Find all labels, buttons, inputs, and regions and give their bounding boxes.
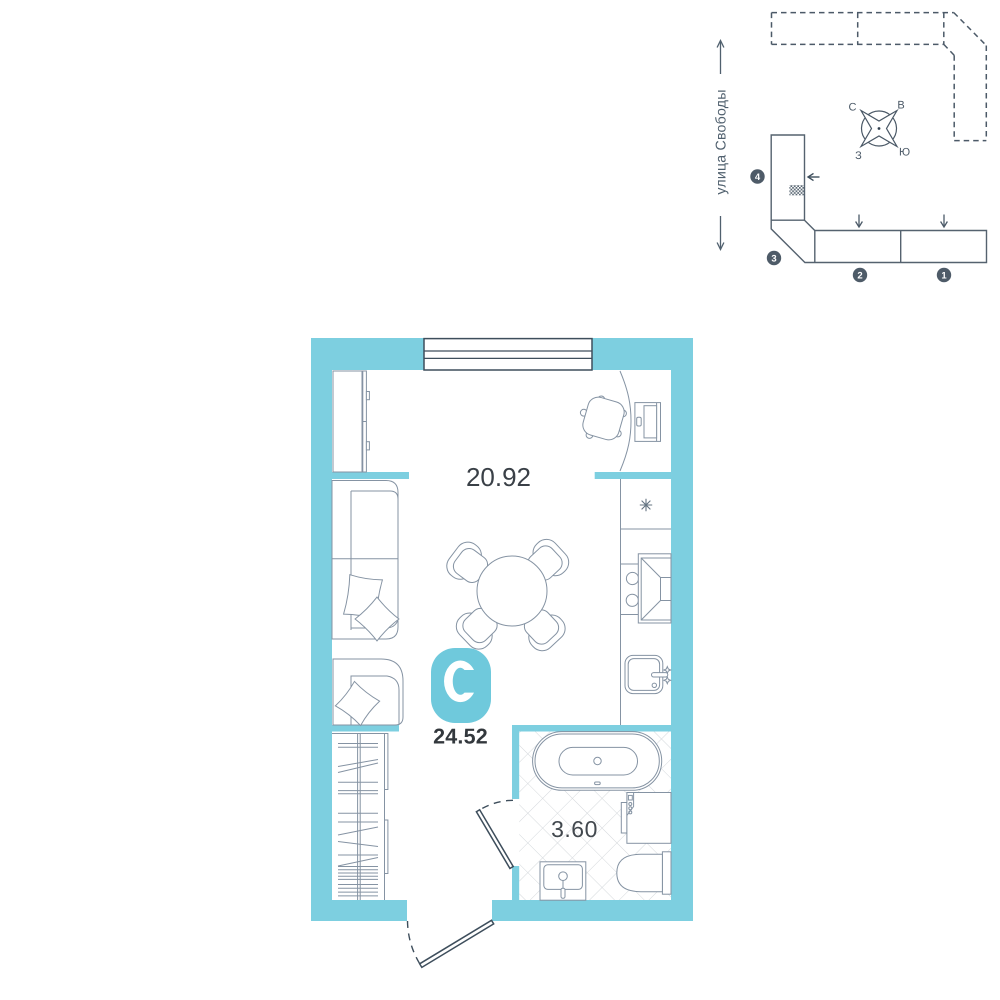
svg-text:3: 3 [771,254,776,265]
svg-text:Ю: Ю [899,147,910,159]
svg-text:С: С [849,102,857,114]
svg-text:24.52: 24.52 [433,725,488,749]
svg-text:4: 4 [755,172,761,183]
svg-text:3.60: 3.60 [551,816,598,842]
svg-text:20.92: 20.92 [466,462,531,492]
svg-text:З: З [855,150,862,162]
svg-text:2: 2 [857,271,862,282]
svg-text:В: В [897,100,904,112]
svg-text:улица Свободы: улица Свободы [714,89,730,194]
svg-text:1: 1 [941,271,947,282]
